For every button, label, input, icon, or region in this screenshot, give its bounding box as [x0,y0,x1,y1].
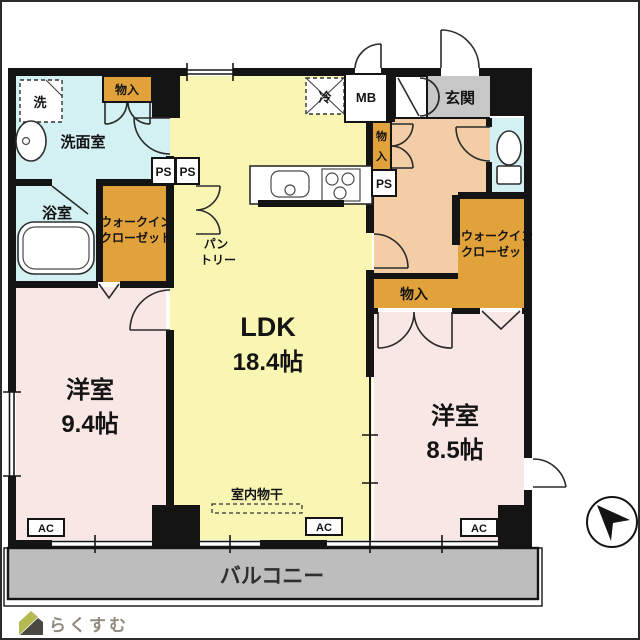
fridge-label: 冷 [318,90,331,105]
pillar-bottom-left [152,505,200,548]
washer-label: 洗 [33,95,46,110]
bedroom-right-size: 8.5帖 [426,437,483,464]
ps-label-1: PS [155,165,171,179]
toilet-tank [497,166,521,184]
ac-label-2: AC [316,522,332,534]
mb-label: MB [356,90,376,105]
storage-bottom-label: 物入 [400,286,428,302]
wic-right-label-1: ウォークイン [461,229,533,243]
ldk-label: LDK [240,312,296,342]
compass [587,497,637,547]
bedroom-left-label: 洋室 [66,376,114,404]
ac-label-1: AC [38,523,54,535]
ps-label-3: PS [376,177,392,191]
pantry-label-1: パン [204,237,229,251]
storage-vertical-label-2: 入 [376,150,387,163]
balcony-label: バルコニー [220,565,325,588]
bedroom-right-label: 洋室 [431,402,479,430]
wic-left-label-2: クローゼット [100,230,172,245]
bathtub [18,222,94,274]
bedroom-left-size: 9.4帖 [61,411,118,438]
floor-plan-drawing: バルコニー [0,0,640,640]
bedroom-right-door [533,459,566,487]
floor-plan: バルコニー [0,0,640,640]
bathroom-label: 浴室 [42,204,72,222]
wic-left-label-1: ウォークイン [100,215,172,229]
ldk-size: 18.4帖 [233,349,304,376]
ac-label-3: AC [471,523,487,535]
kitchen-counter [250,166,372,204]
storage-top-label: 物入 [115,82,139,97]
mb-door [355,44,381,68]
toilet-bowl [497,131,521,165]
washroom-label: 洗面室 [60,133,105,151]
pillar-bottom-right [498,505,532,548]
logo-text: らくすむ [49,616,129,635]
pantry-label-2: トリー [200,253,236,267]
washroom-sink [16,121,46,161]
pillar-top-right [490,76,532,116]
storage-vertical-label-1: 物 [376,129,387,143]
ps-label-2: PS [179,165,195,179]
room-ldk [170,76,372,540]
wic-right-label-2: クローゼット [461,244,533,259]
entrance-door [441,30,479,68]
room-hall-lower [374,195,458,283]
indoor-drying-label: 室内物干 [231,487,283,502]
counter-edge [258,200,344,207]
logo: らくすむ [19,611,129,635]
balcony: バルコニー [4,548,542,606]
entrance-label: 玄関 [445,89,475,107]
